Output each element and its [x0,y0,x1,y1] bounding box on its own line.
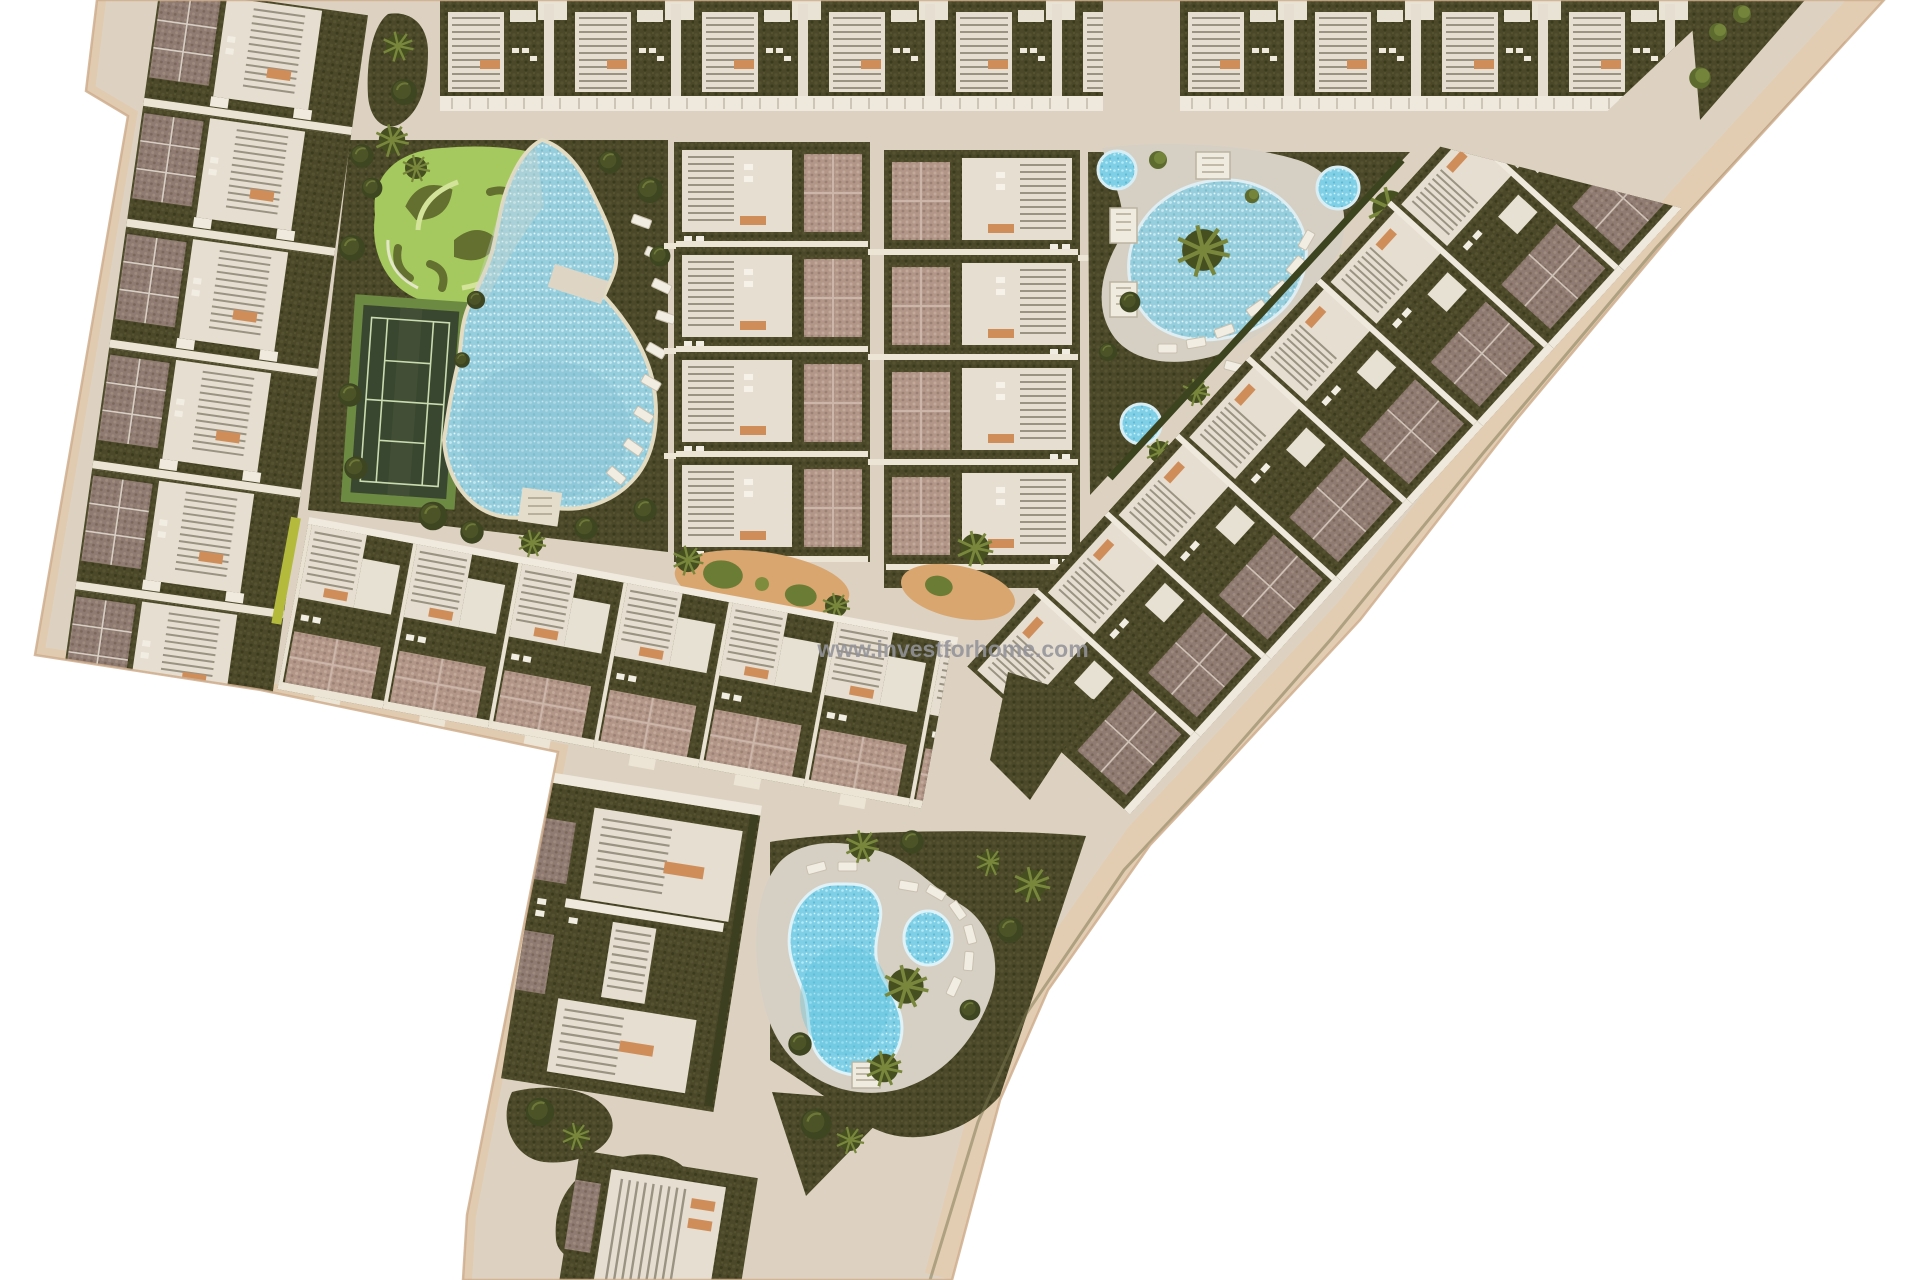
svg-text:www.investforhome.com: www.investforhome.com [816,636,1088,662]
